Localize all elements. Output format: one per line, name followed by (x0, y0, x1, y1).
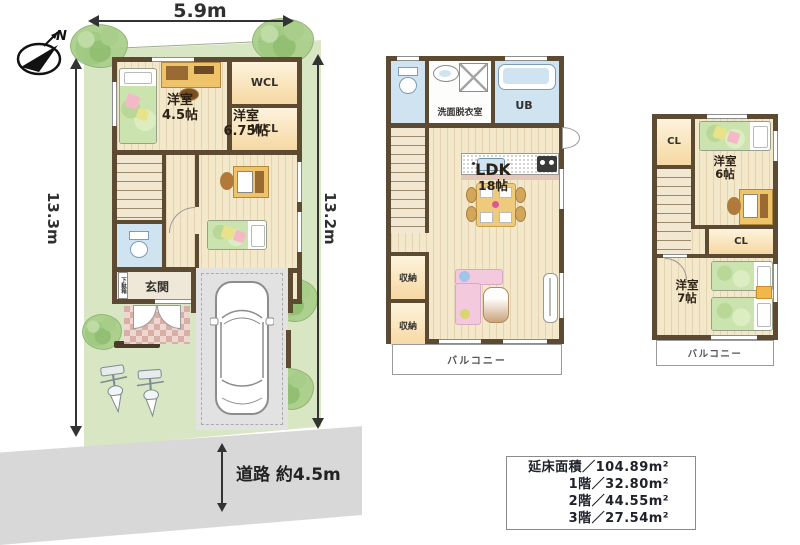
nightstand-icon (756, 286, 772, 299)
room-label-bedroom7: 洋室 7帖 (661, 279, 713, 305)
cushion-icon (459, 271, 470, 282)
genkan-label: 玄関 (125, 278, 189, 295)
shoe-cabinet: 下駄箱 (118, 272, 128, 299)
garage-wall (286, 330, 291, 368)
chair-icon (727, 197, 741, 215)
dim-left-label: 13.3m (44, 192, 62, 245)
wcl-top-label: WCL (232, 76, 297, 89)
compass-north-icon: N (14, 26, 70, 80)
dim-left-arrow-up (70, 58, 82, 69)
dim-right-arrow-down (312, 418, 324, 429)
dim-top-arrow-left (88, 15, 99, 27)
chair-icon (466, 206, 477, 222)
dim-right-label: 13.2m (321, 192, 339, 245)
side-table (483, 287, 509, 323)
svg-text:N: N (56, 29, 67, 44)
road-label: 道路 約4.5m (236, 460, 341, 485)
closet2-label: CL (709, 236, 773, 247)
garage (196, 268, 288, 430)
stairs-icon (391, 128, 425, 233)
bath-label: UB (495, 99, 553, 112)
garage-wall (191, 268, 196, 313)
cushion-icon (460, 309, 470, 319)
road-dim-arrow-down (217, 503, 227, 512)
bed-icon (711, 297, 773, 331)
road-dim-line (221, 449, 223, 505)
room-label-bedroom675: 洋室 6.75帖 (201, 110, 291, 140)
dim-right-line (317, 62, 319, 420)
washroom-label: 洗面脱衣室 (425, 105, 495, 118)
dim-left-line (75, 66, 77, 428)
bed-icon (699, 121, 771, 151)
stove-icon (537, 156, 557, 172)
dim-top-line (97, 20, 285, 22)
car-icon (210, 278, 274, 418)
door-arc-icon (562, 127, 580, 149)
bed-icon (207, 220, 267, 250)
floor2-plan: 洗面脱衣室 UB 収納 収納 (386, 56, 564, 344)
balcony-3f: バルコニー (656, 340, 774, 366)
toilet-icon (398, 67, 418, 94)
floor-plan-canvas: 道路 約4.5m N 5.9m 13.3m 13.2m (0, 0, 800, 545)
road-dim-arrow-up (217, 443, 227, 452)
bicycle-icon (132, 367, 169, 419)
dim-left-arrow-down (70, 426, 82, 437)
desk-icon (161, 62, 221, 88)
floor-area-table: 延床面積／104.89m² 1階／32.80m² 2階／44.55m² 3階／2… (506, 456, 696, 530)
stairs-icon (657, 169, 691, 254)
garage-wall (288, 268, 293, 313)
desk-icon (739, 189, 773, 225)
flower-icon (492, 201, 499, 208)
bicycle-icon (95, 362, 136, 416)
dim-top-label: 5.9m (150, 0, 250, 22)
bathtub-icon (498, 64, 556, 90)
balcony-2f-label: バルコニー (447, 352, 507, 367)
room-label-bedroom6: 洋室 6帖 (697, 155, 753, 181)
chair-icon (515, 206, 526, 222)
sink-icon (433, 65, 459, 82)
floor1-plan: 洋室 4.5帖 WCL WCL 洋室 6.75帖 (112, 57, 302, 304)
stairs-icon (117, 155, 162, 220)
area-total: 延床面積／104.89m² (528, 460, 669, 476)
dim-top-arrow-right (283, 15, 294, 27)
room-label-ldk: LDK 18帖 (451, 161, 535, 194)
balcony-2f: バルコニー (392, 344, 562, 375)
area-1f: 1階／32.80m² (569, 477, 669, 493)
door-arc-icon (665, 258, 687, 280)
balcony-3f-label: バルコニー (688, 346, 743, 360)
door-arc-icon (169, 207, 195, 233)
storage2-label: 収納 (391, 319, 425, 332)
dim-right-arrow-up (312, 54, 324, 65)
chair-icon (220, 172, 234, 190)
desk-icon (233, 166, 269, 198)
storage1-label: 収納 (391, 271, 425, 284)
toilet-icon (129, 231, 149, 258)
closet1-label: CL (657, 136, 691, 147)
floor3-plan: CL 洋室 6帖 CL 洋室 7帖 (652, 114, 778, 340)
area-2f: 2階／44.55m² (569, 494, 669, 510)
area-3f: 3階／27.54m² (569, 511, 669, 527)
washing-machine-icon (459, 63, 488, 92)
sofa-icon (455, 283, 481, 325)
window-unit-icon (543, 273, 558, 323)
